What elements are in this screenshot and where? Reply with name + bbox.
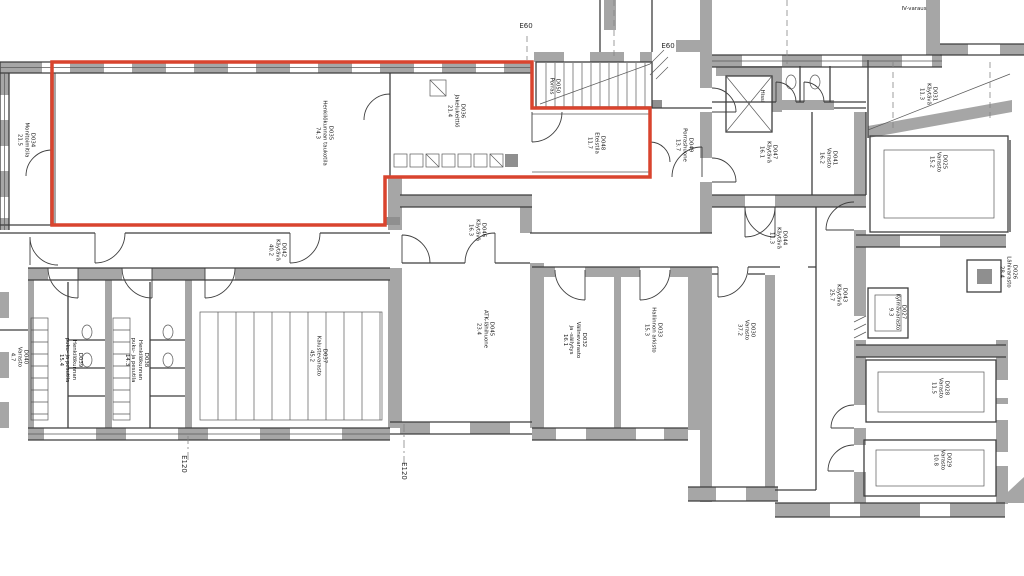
floor-plan: D034 Monitoimitila 21.5 D035 Henkilökunn…: [0, 0, 1024, 576]
highlight-outline: [52, 62, 650, 225]
thin-walls: [0, 0, 1024, 517]
floor-plan-drawing: [0, 0, 1024, 576]
